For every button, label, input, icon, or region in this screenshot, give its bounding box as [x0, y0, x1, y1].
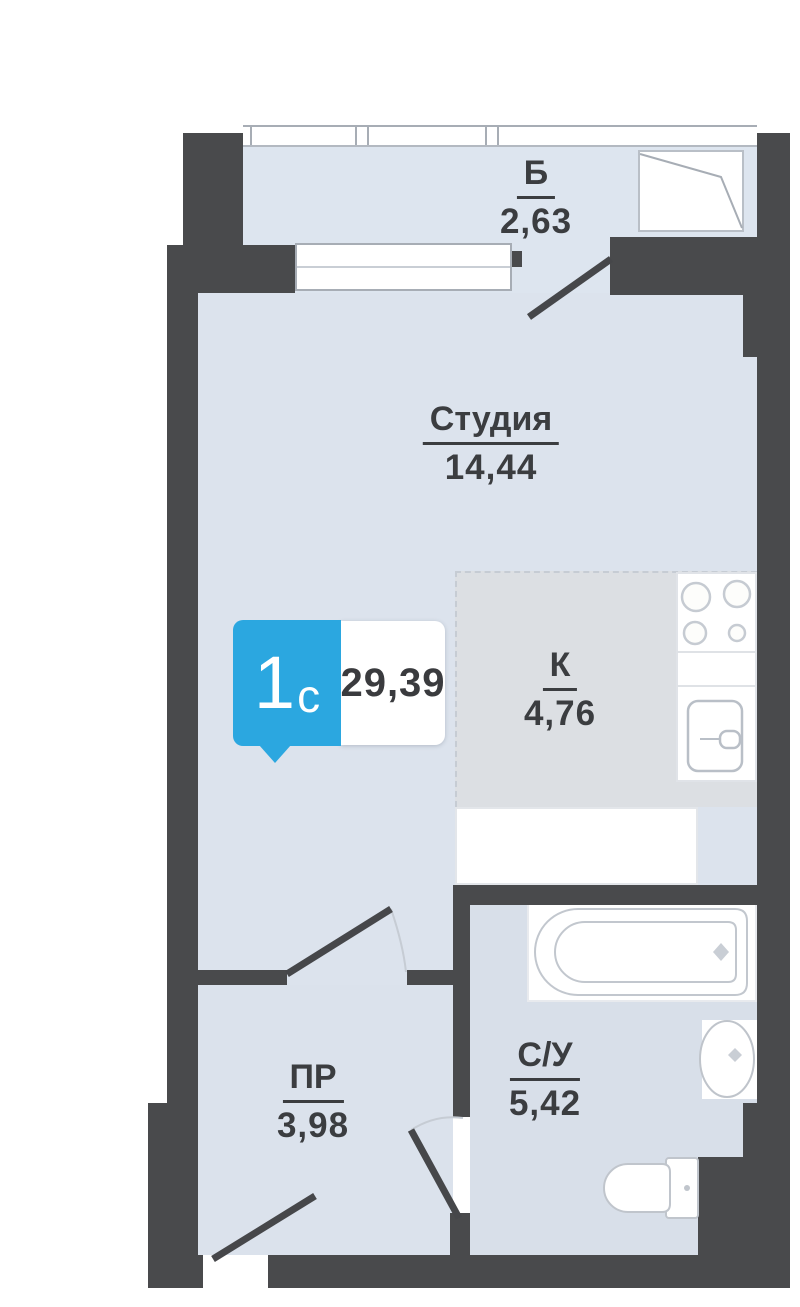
door-swing-arc	[411, 1117, 463, 1130]
room-label-balcony: Б 2,63	[500, 156, 572, 240]
unit-type-number: 1	[254, 646, 295, 720]
room-label-kitchen: К 4,76	[524, 648, 596, 732]
room-area: 2,63	[500, 204, 572, 241]
room-name: Студия	[423, 402, 559, 445]
room-name: ПР	[282, 1060, 343, 1103]
room-name: С/У	[510, 1038, 579, 1081]
toilet-icon	[604, 1158, 698, 1218]
room-label-bathroom: С/У 5,42	[509, 1038, 581, 1122]
unit-type-marker: 1 с	[233, 620, 341, 746]
unit-type-letter: с	[297, 673, 320, 719]
bathtub-icon	[535, 909, 747, 995]
casement-sash-line	[640, 154, 742, 228]
total-area-value: 29,39	[340, 661, 445, 706]
room-area: 14,44	[445, 450, 538, 487]
unit-type-badge: 1 с 29,39	[233, 620, 445, 746]
balcony-door-leaf	[529, 259, 611, 317]
kitchen-sink-icon	[688, 701, 742, 771]
room-area: 5,42	[509, 1086, 581, 1123]
room-area: 3,98	[277, 1108, 349, 1145]
room-label-studio: Студия 14,44	[423, 402, 559, 486]
wash-basin-icon	[700, 1021, 754, 1097]
floor-plan: Б 2,63 Студия 14,44 К 4,76 ПР 3,98 С/У 5…	[0, 0, 800, 1307]
room-name: К	[543, 648, 578, 691]
door-swing-arc	[391, 909, 406, 972]
studio-hall-door-leaf	[287, 909, 391, 974]
entry-door-leaf	[213, 1196, 315, 1259]
stove-icon	[682, 581, 750, 644]
badge-pointer-tail	[259, 745, 291, 763]
room-label-hallway: ПР 3,98	[277, 1060, 349, 1144]
total-area-panel: 29,39	[341, 621, 445, 745]
room-area: 4,76	[524, 696, 596, 733]
room-name: Б	[517, 156, 555, 199]
bathroom-door-leaf	[411, 1130, 459, 1218]
